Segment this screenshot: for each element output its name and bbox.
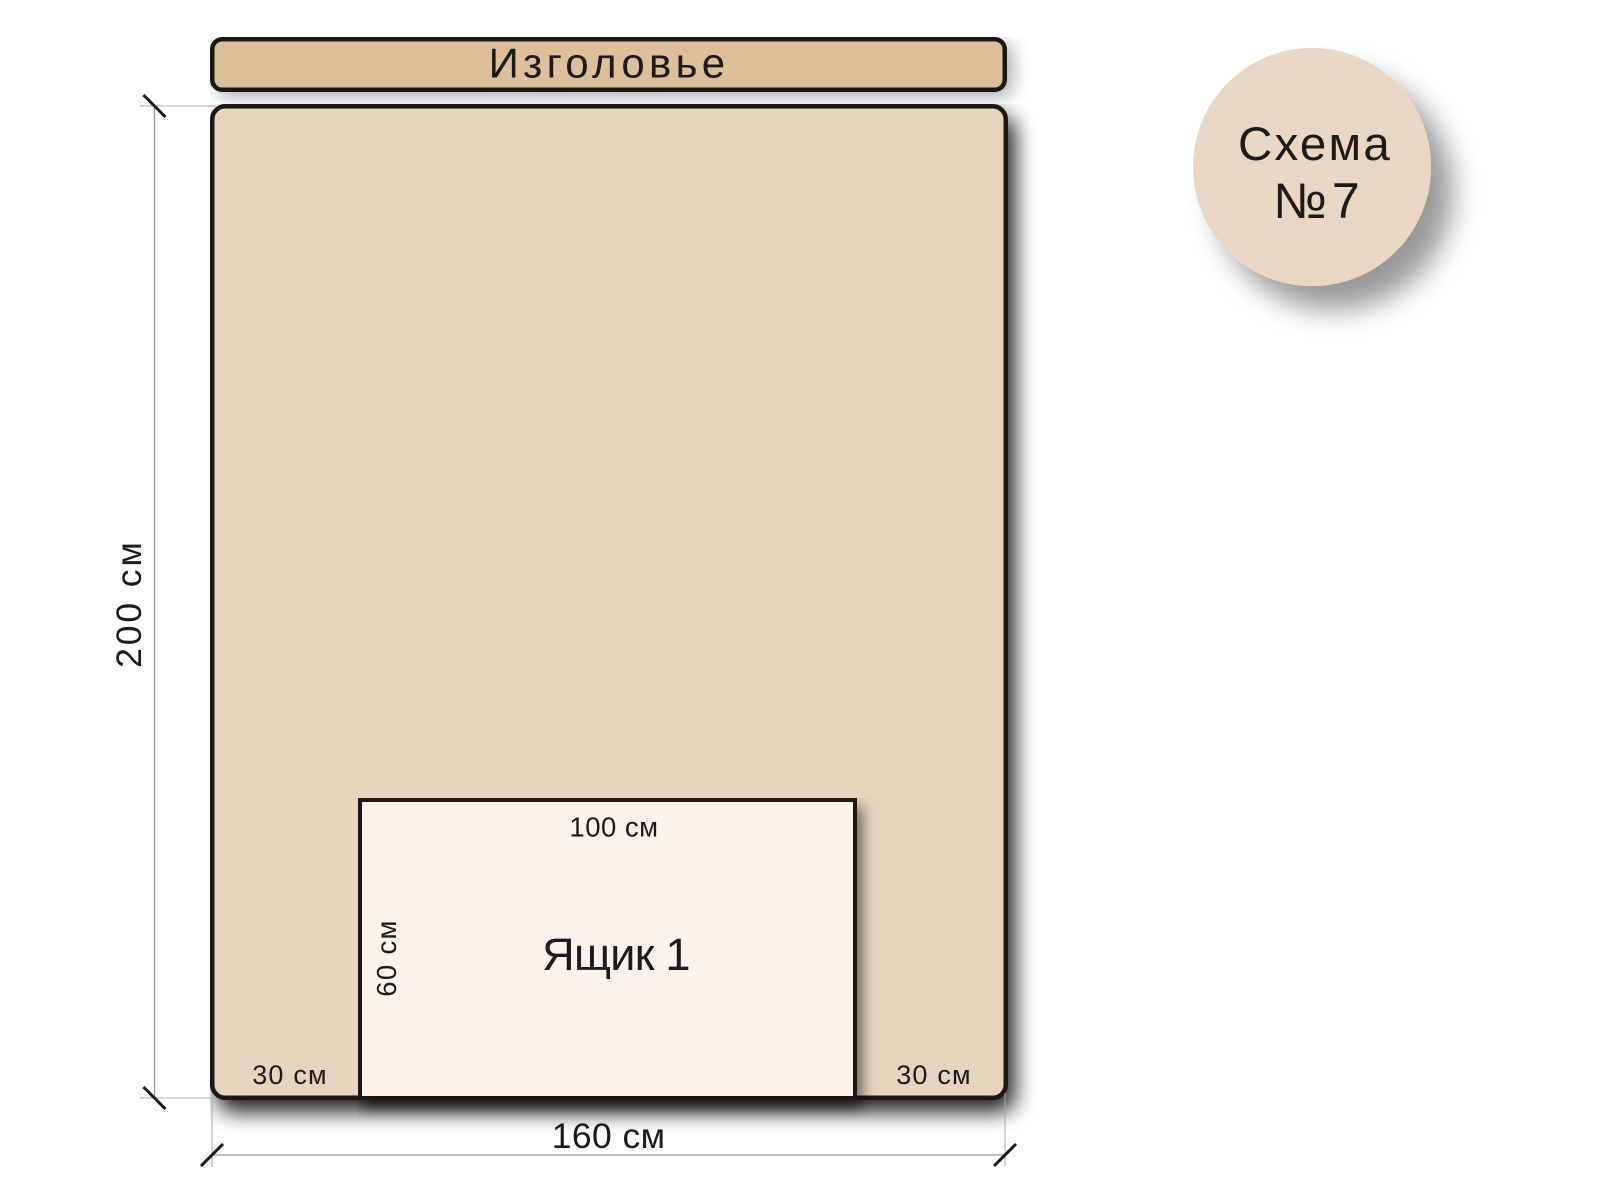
svg-text:Схема: Схема [1238, 118, 1392, 171]
svg-text:30 см: 30 см [896, 1060, 972, 1090]
svg-text:200 см: 200 см [109, 539, 149, 668]
svg-text:№7: №7 [1273, 173, 1364, 229]
svg-text:160 см: 160 см [552, 1116, 666, 1156]
svg-text:Ящик 1: Ящик 1 [542, 929, 690, 980]
svg-text:Изголовье: Изголовье [489, 40, 730, 87]
svg-text:30 см: 30 см [252, 1060, 328, 1090]
svg-text:100 см: 100 см [569, 812, 658, 843]
svg-text:60 см: 60 см [371, 919, 402, 996]
